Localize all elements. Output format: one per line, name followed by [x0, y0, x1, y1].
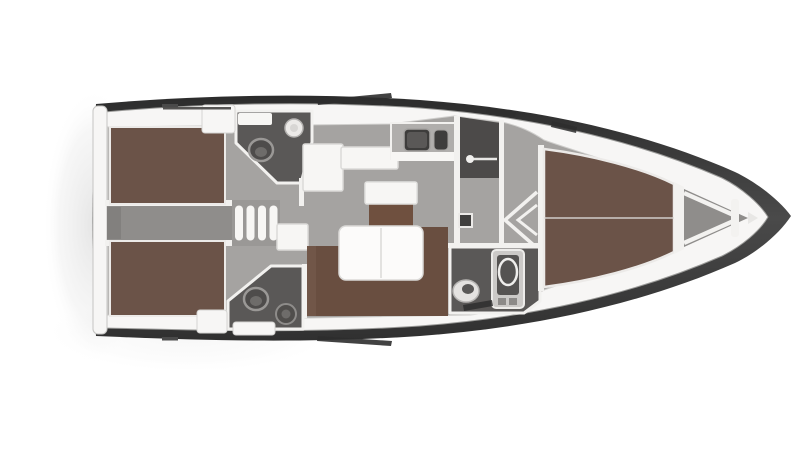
forward-head [450, 247, 540, 313]
engine-hatch [107, 207, 121, 239]
galley-counter-edge [391, 152, 458, 161]
deck-box [197, 310, 227, 333]
toilet-seat [250, 296, 262, 306]
shower-step [509, 298, 517, 305]
shower-step [498, 298, 506, 305]
l-seat-horizontal [341, 147, 398, 169]
engine-corridor [105, 200, 280, 246]
aft-cabin-starboard-berth [110, 241, 225, 316]
side-cabinet [277, 224, 308, 250]
toilet-seat [255, 147, 267, 157]
aft-head-port-shelf [238, 113, 272, 125]
sink-large-basin [407, 132, 427, 148]
shower-drain-center [282, 310, 291, 319]
stair-step [235, 206, 243, 241]
locker-crossbar [731, 199, 739, 237]
stair-step [247, 206, 255, 241]
l-seat-vertical [303, 144, 343, 191]
door-handle [459, 214, 472, 227]
cabin-wall [302, 264, 307, 318]
deck-fitting [162, 104, 178, 108]
galley [391, 123, 458, 161]
bulkhead [454, 116, 460, 248]
toilet-seat [462, 284, 474, 294]
sink-drain [290, 124, 298, 132]
bulkhead [499, 120, 504, 248]
coffee-table-body [369, 202, 413, 228]
deck-box [233, 322, 275, 335]
deck-fitting [162, 337, 178, 341]
coffee-table-top [365, 182, 417, 204]
settee-armrest [307, 246, 316, 316]
transom-platform [93, 106, 107, 334]
bow-bulkhead [674, 182, 684, 254]
shower-room [460, 117, 500, 178]
stair-step [258, 206, 266, 241]
shower-floor [460, 117, 500, 178]
corridor-floor [107, 205, 234, 241]
shower-head [466, 155, 474, 163]
yacht-floorplan [0, 0, 800, 450]
aft-cabin-port-berth [110, 127, 225, 204]
sink-small [434, 130, 448, 150]
